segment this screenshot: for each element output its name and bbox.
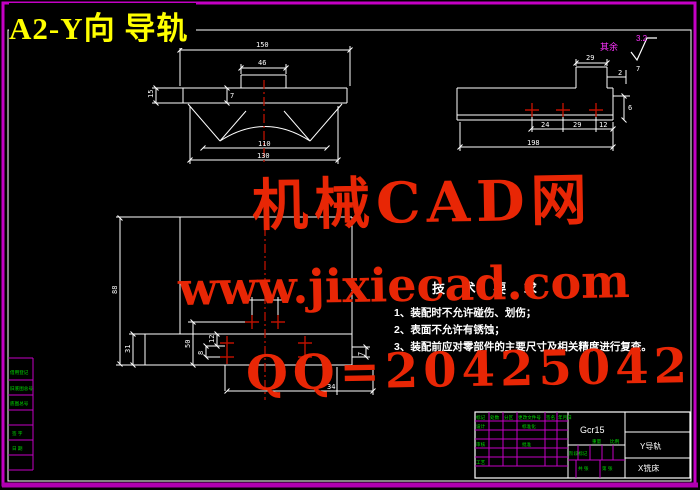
finish-value: 3.2 xyxy=(636,34,648,43)
dim-step: 7 xyxy=(230,92,234,100)
surface-finish: 其余 3.2 xyxy=(600,34,657,60)
org-cell: X铣床 xyxy=(638,463,659,473)
side-view xyxy=(457,59,630,151)
sidebar-row-label: 旧底图总号 xyxy=(10,385,33,392)
sidebar-row-label: 底图总号 xyxy=(10,400,29,407)
svg-text:分区: 分区 xyxy=(504,414,514,421)
dim-groove-span: 110 xyxy=(258,140,271,148)
dim-plan-31: 31 xyxy=(124,345,132,353)
page-title: A2-Y向 导轨 xyxy=(9,3,196,48)
section-view xyxy=(152,46,350,164)
title-block-labels: 标记 处数 分区 更改文件号 签名 年月日 设计 标准化 审核 批准 工艺 阶段… xyxy=(476,414,620,472)
side-dim-text: 29 2 7 6 24 29 12 198 xyxy=(527,54,640,147)
dim-pitch-1: 24 xyxy=(541,121,549,129)
finish-note-text: 其余 xyxy=(600,41,618,52)
sidebar-row-label: 签 字 xyxy=(12,430,23,436)
dim-plan-8: 8 xyxy=(197,351,205,355)
title-block: Gcr15 Y导轨 X铣床 标记 处数 分区 更改文件号 签名 年月日 设计 标… xyxy=(475,412,690,478)
svg-text:设计: 设计 xyxy=(476,423,486,430)
svg-text:工艺: 工艺 xyxy=(476,460,486,465)
svg-text:标记: 标记 xyxy=(476,414,486,421)
watermark-brand: 机械CAD网 xyxy=(251,155,593,242)
svg-text:重量: 重量 xyxy=(592,438,602,445)
svg-text:第 张: 第 张 xyxy=(602,465,613,472)
dim-overall-length: 198 xyxy=(527,139,540,147)
part-name-cell: Y导轨 xyxy=(640,441,661,451)
tech-req-item: 2、表面不允许有锈蚀； xyxy=(394,322,652,339)
drawing-linework: 借用登记 旧底图总号 底图总号 签 字 日 期 150 46 15 7 xyxy=(0,0,700,490)
svg-text:标准化: 标准化 xyxy=(522,423,536,430)
svg-text:批准: 批准 xyxy=(522,441,532,448)
dim-pitch-3: 12 xyxy=(599,121,607,129)
watermark-url: www.jixiecad.com xyxy=(178,254,631,316)
svg-text:阶段标记: 阶段标记 xyxy=(569,450,588,457)
svg-text:处数: 处数 xyxy=(490,414,500,421)
dim-gap: 2 xyxy=(618,69,622,77)
dim-plan-12: 12 xyxy=(208,335,216,343)
svg-text:更改文件号: 更改文件号 xyxy=(518,414,541,421)
svg-text:比例: 比例 xyxy=(610,438,620,445)
svg-text:年月日: 年月日 xyxy=(558,414,572,421)
dim-depth: 6 xyxy=(628,104,632,112)
dim-boss-top: 29 xyxy=(586,54,594,62)
material-cell: Gcr15 xyxy=(580,425,605,435)
sidebar-row-label: 日 期 xyxy=(12,446,23,452)
dim-plan-height: 88 xyxy=(111,286,119,294)
cad-drawing-sheet: 借用登记 旧底图总号 底图总号 签 字 日 期 150 46 15 7 xyxy=(0,0,700,490)
svg-text:签名: 签名 xyxy=(546,414,555,421)
dim-boss-width: 46 xyxy=(258,59,266,67)
sidebar-row-label: 借用登记 xyxy=(10,369,29,376)
watermark-qq: QQ=20425042 xyxy=(246,338,693,402)
dim-pitch-2: 29 xyxy=(573,121,581,129)
svg-text:共 张: 共 张 xyxy=(578,465,589,472)
dim-edge: 7 xyxy=(636,65,640,73)
dim-plan-50: 50 xyxy=(184,340,192,348)
dim-overall-width: 150 xyxy=(256,41,269,49)
dim-bottom-width: 130 xyxy=(257,152,270,160)
dim-plate-height: 15 xyxy=(147,90,155,98)
section-dim-text: 150 46 15 7 110 130 xyxy=(147,41,271,160)
svg-text:审核: 审核 xyxy=(476,441,486,448)
